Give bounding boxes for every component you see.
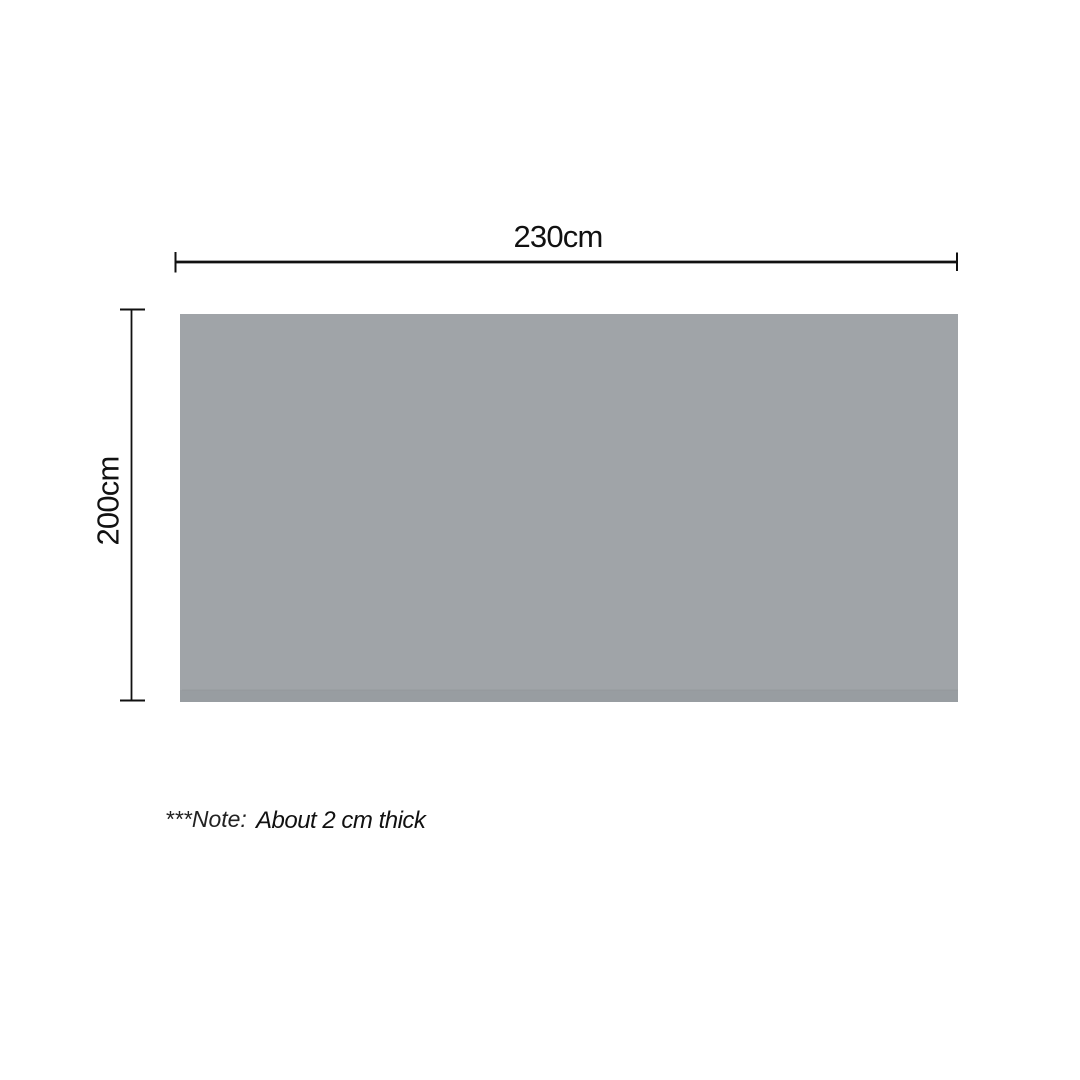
svg-text:About 2 cm thick: About 2 cm thick — [254, 807, 428, 834]
svg-text:***Note:: ***Note: — [165, 806, 247, 832]
svg-text:230cm: 230cm — [513, 219, 602, 254]
svg-text:200cm: 200cm — [91, 456, 126, 545]
